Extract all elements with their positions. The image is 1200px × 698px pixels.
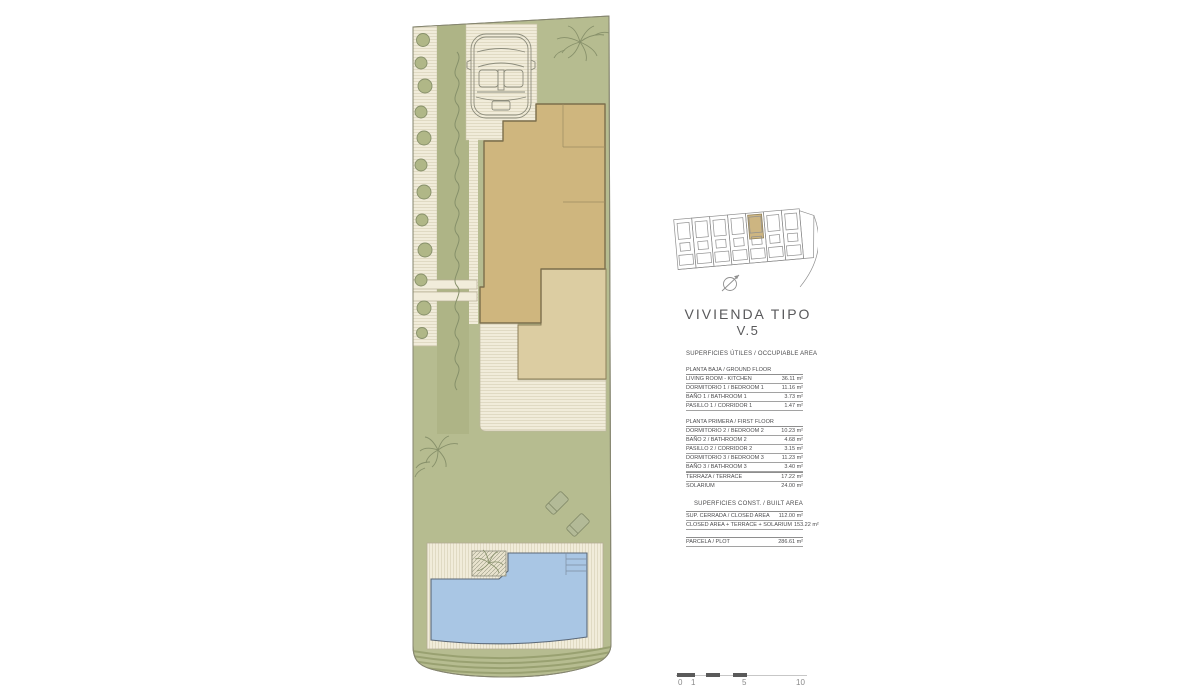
area-row: TERRAZA / TERRACE17.22 m²	[686, 473, 803, 482]
scale-label-10: 10	[796, 678, 805, 687]
unit-type-version: V.5	[672, 323, 824, 338]
site-plan-sheet: VIVIENDA TIPO V.5 SUPERFICIES ÚTILES / O…	[0, 0, 1200, 698]
area-row: CLOSED AREA + TERRACE + SOLARIUM153.22 m…	[686, 521, 803, 530]
unit-type-title: VIVIENDA TIPO	[672, 306, 824, 323]
area-row: SUP. CERRADA / CLOSED AREA112.00 m²	[686, 512, 803, 521]
area-row: PASILLO 2 / CORRIDOR 23.15 m²	[686, 445, 803, 454]
section-title-first-floor: PLANTA PRIMERA / FIRST FLOOR	[686, 419, 803, 426]
built-section: SUP. CERRADA / CLOSED AREA112.00 m² CLOS…	[686, 511, 803, 530]
area-label: SUP. CERRADA / CLOSED AREA	[686, 513, 770, 520]
area-label: DORMITORIO 3 / BEDROOM 3	[686, 455, 764, 462]
area-row: PARCELA / PLOT286.61 m²	[686, 538, 803, 547]
key-plan	[670, 198, 818, 306]
side-green-strip	[437, 24, 469, 434]
area-row: DORMITORIO 3 / BEDROOM 311.23 m²	[686, 454, 803, 463]
area-value: 11.16 m²	[782, 385, 803, 392]
area-row: SOLARIUM24.00 m²	[686, 482, 803, 490]
scale-bar: 0 1 5 10	[676, 669, 810, 689]
pool-planter	[472, 550, 506, 576]
useful-area-header: SUPERFICIES ÚTILES / OCCUPIABLE AREA	[686, 351, 803, 357]
area-label: BAÑO 2 / BATHROOM 2	[686, 437, 747, 444]
area-label: PASILLO 1 / CORRIDOR 1	[686, 403, 752, 410]
area-label: LIVING ROOM - KITCHEN	[686, 376, 752, 383]
built-area-header: SUPERFICIES CONST. / BUILT AREA	[686, 501, 803, 507]
area-row: DORMITORIO 2 / BEDROOM 210.23 m²	[686, 427, 803, 436]
area-value: 17.22 m²	[781, 474, 803, 481]
area-value: 24.00 m²	[781, 483, 803, 490]
plot-section: PARCELA / PLOT286.61 m²	[686, 537, 803, 547]
key-plan-highlighted-unit	[748, 214, 764, 239]
area-label: PASILLO 2 / CORRIDOR 2	[686, 446, 752, 453]
north-arrow-icon	[722, 275, 739, 291]
area-row: BAÑO 2 / BATHROOM 24.68 m²	[686, 436, 803, 445]
scale-bar-segment	[706, 673, 720, 677]
area-row: DORMITORIO 1 / BEDROOM 111.16 m²	[686, 384, 803, 393]
area-label: CLOSED AREA + TERRACE + SOLARIUM	[686, 522, 792, 529]
ground-floor-section: PLANTA BAJA / GROUND FLOOR LIVING ROOM -…	[686, 367, 803, 411]
area-value: 3.73 m²	[784, 394, 803, 401]
area-label: DORMITORIO 2 / BEDROOM 2	[686, 428, 764, 435]
area-value: 112.00 m²	[779, 513, 803, 520]
area-label: DORMITORIO 1 / BEDROOM 1	[686, 385, 764, 392]
area-value: 153.22 m²	[794, 522, 819, 529]
scale-label-5: 5	[742, 678, 746, 687]
area-value: 10.23 m²	[781, 428, 803, 435]
area-label: PARCELA / PLOT	[686, 539, 730, 546]
area-row: BAÑO 1 / BATHROOM 13.73 m²	[686, 393, 803, 402]
section-title-ground-floor: PLANTA BAJA / GROUND FLOOR	[686, 367, 803, 374]
area-label: TERRAZA / TERRACE	[686, 474, 742, 481]
area-value: 286.61 m²	[778, 539, 803, 546]
title-block: VIVIENDA TIPO V.5	[672, 306, 824, 338]
area-value: 11.23 m²	[782, 455, 803, 462]
scale-bar-segment	[733, 673, 747, 677]
area-value: 36.11 m²	[782, 376, 803, 383]
scale-label-0: 0	[678, 678, 682, 687]
scale-bar-segment	[677, 673, 695, 677]
area-label: SOLARIUM	[686, 483, 715, 490]
area-label: BAÑO 1 / BATHROOM 1	[686, 394, 747, 401]
first-floor-section: PLANTA PRIMERA / FIRST FLOOR DORMITORIO …	[686, 419, 803, 472]
area-value: 4.68 m²	[784, 437, 803, 444]
area-row: BAÑO 3 / BATHROOM 33.40 m²	[686, 463, 803, 472]
area-value: 1.47 m²	[784, 403, 803, 410]
key-plan-end-plot	[799, 209, 817, 258]
area-label: BAÑO 3 / BATHROOM 3	[686, 464, 747, 471]
site-plan	[406, 12, 614, 690]
outdoor-section: TERRAZA / TERRACE17.22 m² SOLARIUM24.00 …	[686, 472, 803, 490]
scale-label-1: 1	[691, 678, 695, 687]
area-value: 3.15 m²	[784, 446, 803, 453]
area-value: 3.40 m²	[784, 464, 803, 471]
area-row: LIVING ROOM - KITCHEN36.11 m²	[686, 375, 803, 384]
area-row: PASILLO 1 / CORRIDOR 11.47 m²	[686, 402, 803, 411]
